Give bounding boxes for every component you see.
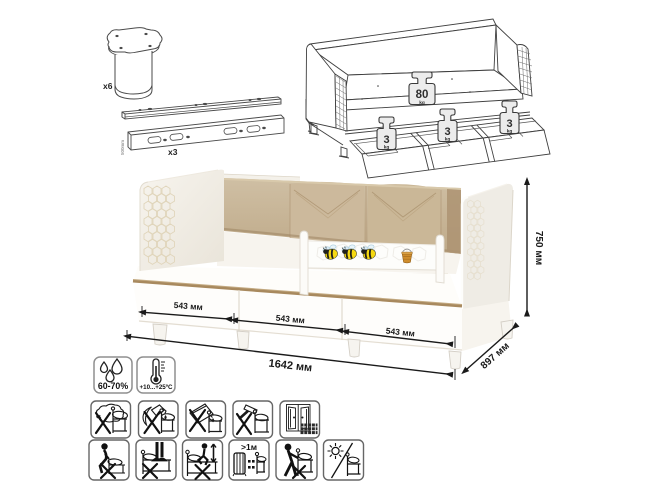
svg-text:1642 мм: 1642 мм (268, 358, 313, 375)
svg-text:x6: x6 (103, 81, 113, 91)
svg-text:500mm: 500mm (120, 140, 125, 155)
svg-text:3: 3 (444, 126, 450, 138)
svg-text:kg: kg (445, 137, 451, 143)
svg-text:3: 3 (506, 118, 512, 130)
svg-text:kg: kg (384, 145, 390, 151)
svg-text:80: 80 (416, 89, 429, 101)
svg-text:>1м: >1м (241, 442, 257, 452)
svg-text:60-70%: 60-70% (98, 381, 128, 391)
svg-text:750 мм: 750 мм (533, 231, 544, 265)
svg-text:897 мм: 897 мм (479, 341, 512, 372)
svg-text:x3: x3 (168, 147, 178, 157)
svg-text:3: 3 (383, 134, 389, 146)
svg-text:kg: kg (419, 100, 425, 106)
svg-text:+10...+25ºC: +10...+25ºC (140, 384, 173, 391)
svg-text:kg: kg (507, 129, 513, 135)
